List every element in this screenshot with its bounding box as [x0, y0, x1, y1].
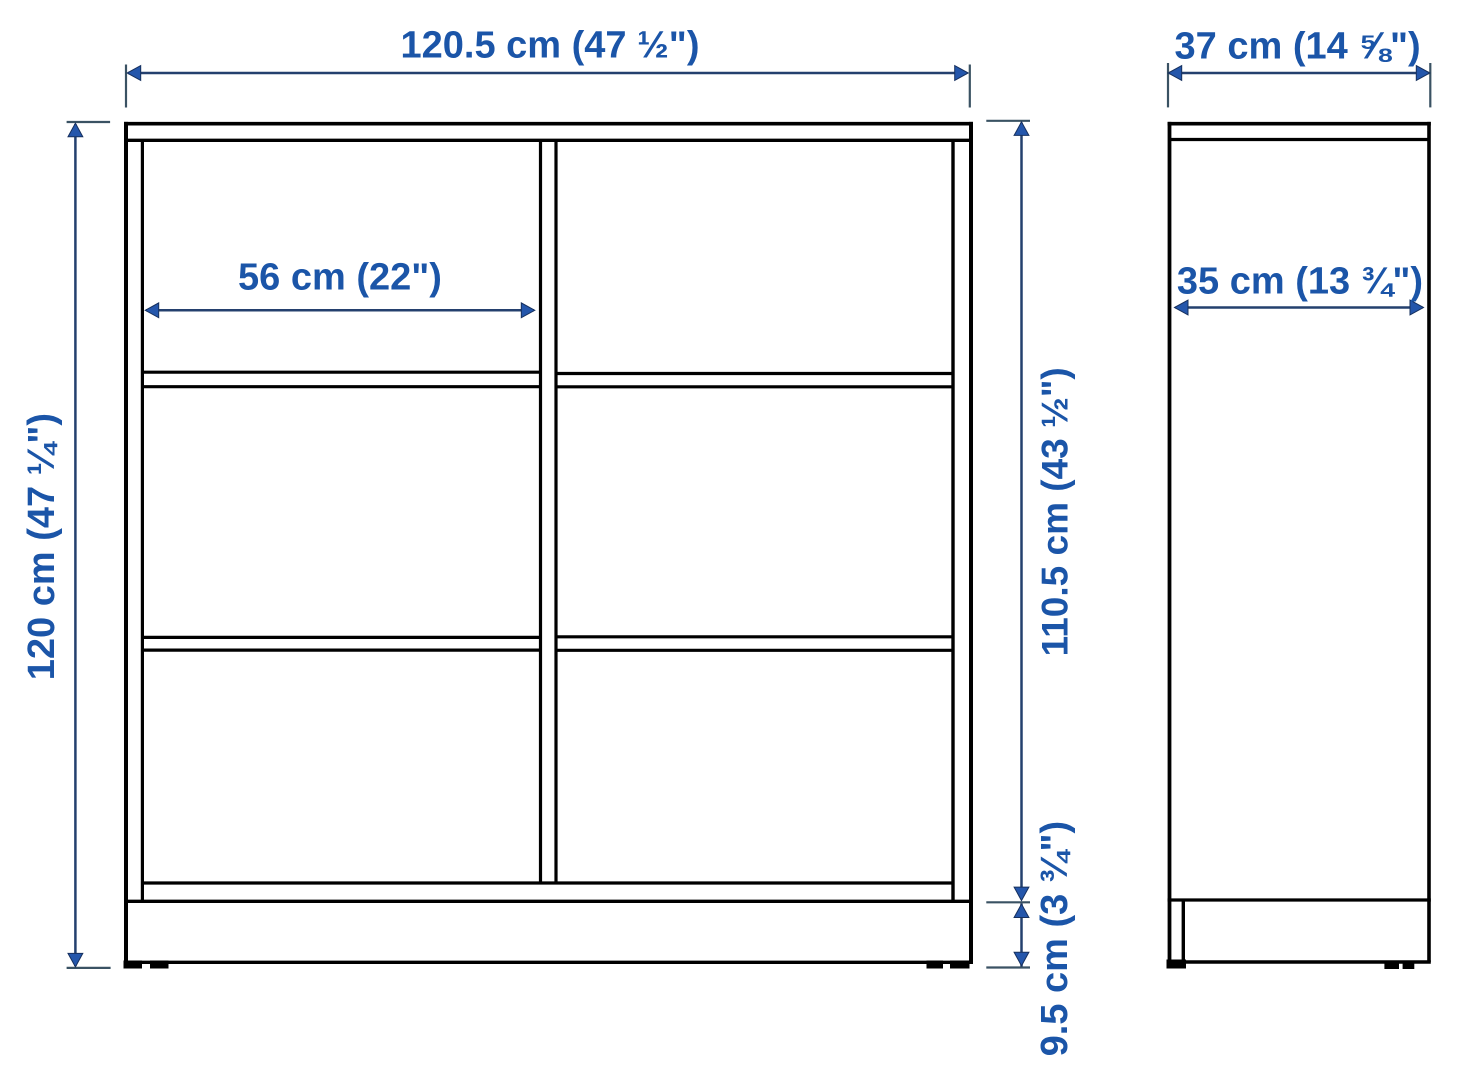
svg-text:56 cm (22"): 56 cm (22"): [238, 257, 442, 299]
svg-text:110.5 cm (43 ½"): 110.5 cm (43 ½"): [1035, 367, 1076, 656]
svg-text:120.5 cm (47 ½"): 120.5 cm (47 ½"): [401, 25, 700, 67]
svg-text:37 cm (14 ⅝"): 37 cm (14 ⅝"): [1175, 26, 1421, 68]
svg-text:9.5 cm (3 ¾"): 9.5 cm (3 ¾"): [1034, 821, 1076, 1057]
svg-text:120 cm (47 ¼"): 120 cm (47 ¼"): [21, 413, 63, 680]
svg-text:35 cm (13 ¾"): 35 cm (13 ¾"): [1177, 261, 1423, 303]
